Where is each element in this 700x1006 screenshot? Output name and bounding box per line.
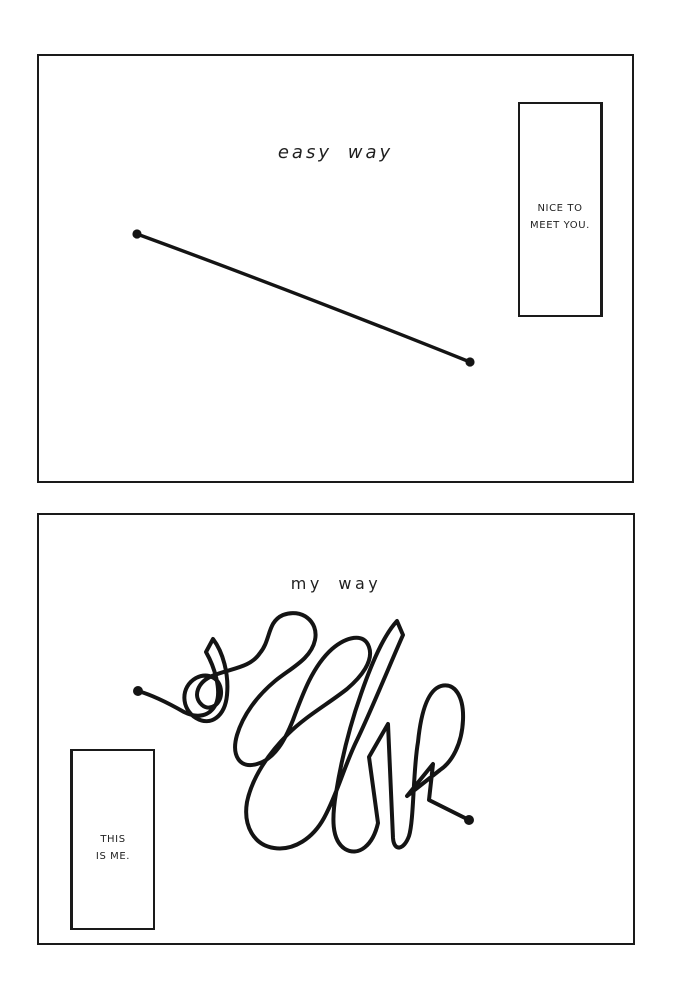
panel-my-way: my way THIS IS ME.	[37, 513, 635, 945]
speech-box-this-is-me: THIS IS ME.	[70, 749, 155, 930]
panel-my-way-title: my way	[39, 574, 633, 593]
speech-line-1: NICE TO	[537, 200, 582, 217]
speech-line-1: THIS	[100, 831, 125, 848]
speech-line-2: MEET YOU.	[530, 217, 590, 234]
speech-line-2: IS ME.	[96, 848, 130, 865]
panel-easy-way: easy way NICE TO MEET YOU.	[37, 54, 634, 483]
speech-box-nice-to-meet-you: NICE TO MEET YOU.	[518, 102, 603, 317]
comic-page: easy way NICE TO MEET YOU. my way THIS I…	[0, 0, 700, 1006]
